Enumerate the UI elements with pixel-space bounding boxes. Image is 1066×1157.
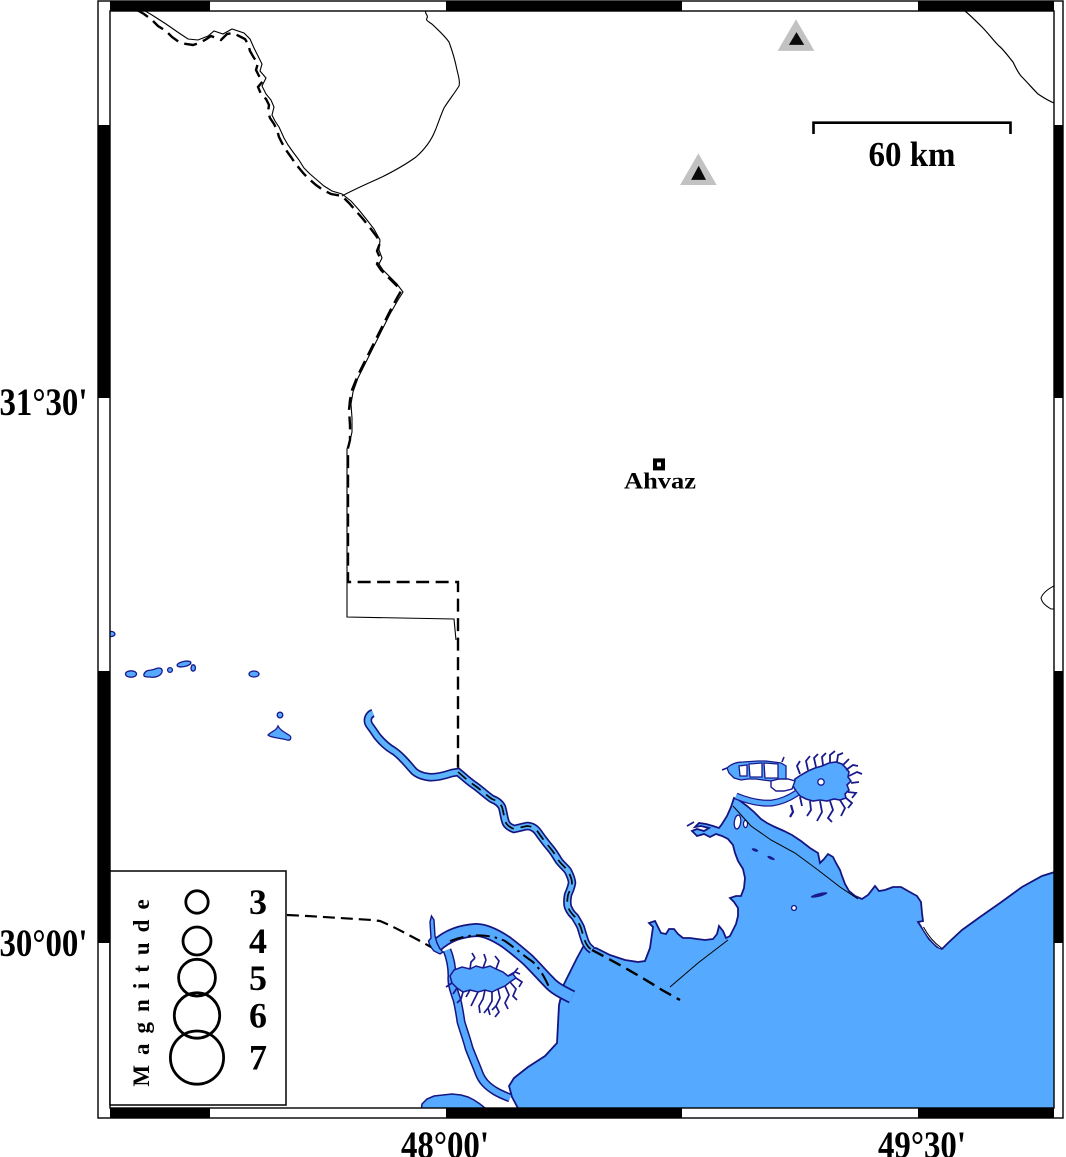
svg-text:3: 3 xyxy=(249,882,267,922)
svg-text:31°30': 31°30' xyxy=(0,381,88,424)
svg-text:5: 5 xyxy=(249,958,267,998)
svg-text:6: 6 xyxy=(249,996,267,1036)
svg-text:4: 4 xyxy=(249,921,267,961)
svg-text:48°00': 48°00' xyxy=(401,1124,489,1157)
svg-text:Magnitude: Magnitude xyxy=(129,889,154,1086)
svg-text:49°30': 49°30' xyxy=(878,1124,966,1157)
svg-text:30°00': 30°00' xyxy=(0,922,88,965)
svg-text:60 km: 60 km xyxy=(869,135,956,174)
svg-text:Ahvaz: Ahvaz xyxy=(624,469,696,494)
svg-text:7: 7 xyxy=(249,1038,267,1078)
